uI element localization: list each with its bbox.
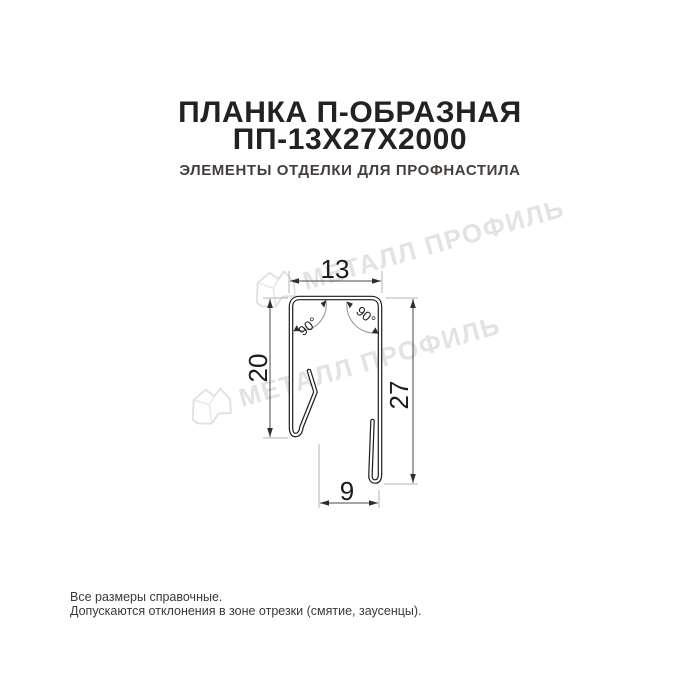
dimension-left-height: 20	[243, 299, 273, 437]
dimension-top-width: 13	[290, 254, 381, 284]
product-title-line2: ПП-13Х27Х2000	[0, 126, 700, 153]
dimension-right-height: 27	[384, 299, 416, 483]
footer-notes: Все размеры справочные. Допускаются откл…	[70, 591, 422, 618]
footnote-line2: Допускаются отклонения в зоне отрезки (с…	[70, 605, 422, 619]
dim-label-9: 9	[340, 476, 354, 506]
product-subtitle: ЭЛЕМЕНТЫ ОТДЕЛКИ ДЛЯ ПРОФНАСТИЛА	[0, 162, 700, 179]
dim-label-13: 13	[321, 254, 350, 284]
angle-label-right: 90°	[353, 303, 378, 328]
footnote-line1: Все размеры справочные.	[70, 591, 422, 605]
product-title-line1: ПЛАНКА П-ОБРАЗНАЯ	[0, 99, 700, 126]
page-header: ПЛАНКА П-ОБРАЗНАЯ ПП-13Х27Х2000	[0, 99, 700, 153]
dim-label-27: 27	[384, 381, 414, 410]
dim-label-20: 20	[243, 354, 273, 383]
angle-label-left: 90°	[295, 314, 320, 339]
